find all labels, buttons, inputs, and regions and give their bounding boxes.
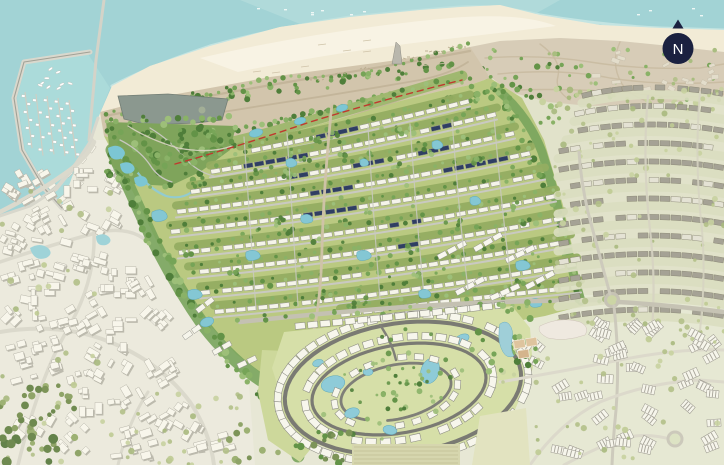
svg-text:N: N bbox=[673, 41, 684, 58]
